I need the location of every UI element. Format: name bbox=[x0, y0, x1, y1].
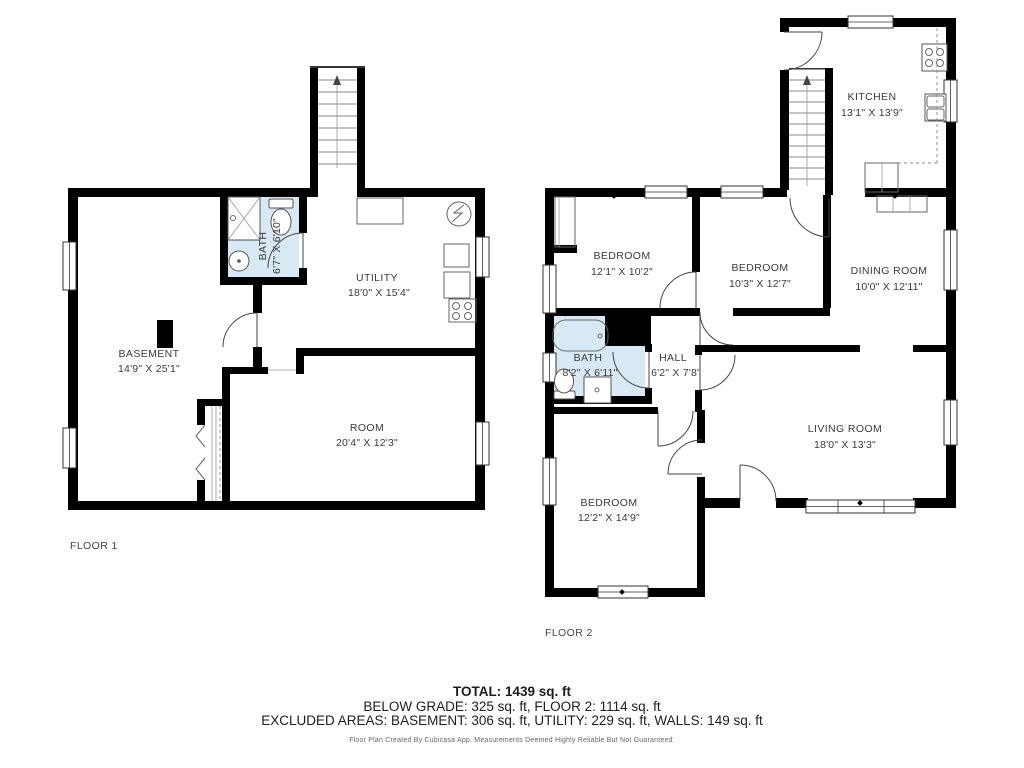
wall bbox=[545, 308, 660, 316]
stove-icon bbox=[922, 44, 947, 71]
electrical-panel-icon bbox=[447, 202, 471, 226]
appliance-box bbox=[444, 244, 469, 267]
room-label-room: ROOM bbox=[350, 422, 384, 434]
room-label-living: LIVING ROOM bbox=[808, 423, 882, 435]
sink-icon bbox=[229, 251, 249, 271]
wall bbox=[645, 344, 652, 352]
room-label-dining: DINING ROOM bbox=[851, 265, 928, 277]
wall bbox=[702, 345, 860, 352]
room-dims-bath2: 8'2" X 6'11" bbox=[562, 367, 617, 379]
floor2-caption: FLOOR 2 bbox=[545, 627, 593, 639]
stair-break-mark bbox=[196, 425, 205, 447]
area-summary: TOTAL: 1439 sq. ft BELOW GRADE: 325 sq. … bbox=[0, 685, 1024, 745]
room-label-bedroom3: BEDROOM bbox=[580, 497, 637, 509]
wall bbox=[68, 501, 485, 510]
dining-cabinet bbox=[877, 196, 927, 212]
room-label-hall: HALL bbox=[659, 352, 687, 364]
room-dims-bath1: 6'7" X 6'10" bbox=[271, 218, 283, 274]
wall bbox=[733, 308, 830, 316]
room-dims-kitchen: 13'1" X 13'9" bbox=[841, 107, 903, 119]
floor1-caption: FLOOR 1 bbox=[70, 540, 118, 552]
window bbox=[543, 16, 957, 598]
wall bbox=[253, 285, 262, 313]
wall bbox=[357, 68, 365, 193]
floorplan-drawing: BASEMENT 14'9" X 25'1" UTILITY 18'0" X 1… bbox=[0, 0, 1024, 660]
wall bbox=[545, 407, 658, 414]
wall bbox=[197, 399, 205, 425]
wall bbox=[913, 345, 956, 352]
room-label-bath1: BATH bbox=[257, 232, 269, 261]
room-dims-utility: 18'0" X 15'4" bbox=[348, 287, 410, 299]
room-dims-bedroom2: 10'3" X 12'7" bbox=[729, 278, 791, 290]
room-dims-bedroom1: 12'1" X 10'2" bbox=[591, 266, 653, 278]
wall bbox=[823, 195, 831, 308]
wall bbox=[697, 410, 705, 443]
wall bbox=[253, 347, 262, 369]
excluded-areas: EXCLUDED AREAS: BASEMENT: 306 sq. ft, UT… bbox=[0, 714, 1024, 729]
utility-table bbox=[357, 198, 403, 224]
room-label-bedroom1: BEDROOM bbox=[593, 250, 650, 262]
floor1-plan: BASEMENT 14'9" X 25'1" UTILITY 18'0" X 1… bbox=[63, 66, 489, 510]
room-label-utility: UTILITY bbox=[356, 272, 398, 284]
shower-icon bbox=[584, 377, 611, 403]
kitchen-sink-icon bbox=[925, 94, 946, 121]
wall bbox=[68, 188, 318, 197]
wall bbox=[296, 348, 478, 356]
appliance-box bbox=[444, 272, 470, 298]
floor2-plan: KITCHEN 13'1" X 13'9" BEDROOM 12'1" X 10… bbox=[543, 16, 957, 598]
room-dims-dining: 10'0" X 12'11" bbox=[855, 281, 922, 293]
credit-note: Floor Plan Created By Cubicasa App. Meas… bbox=[0, 736, 1024, 745]
chimney bbox=[157, 320, 173, 348]
wall bbox=[695, 345, 702, 355]
shower-icon bbox=[228, 197, 260, 240]
wall bbox=[697, 477, 705, 595]
room-label-kitchen: KITCHEN bbox=[848, 91, 897, 103]
wall bbox=[692, 188, 700, 272]
wall bbox=[197, 480, 205, 508]
total-area: TOTAL: 1439 sq. ft bbox=[0, 685, 1024, 700]
stove-icon bbox=[449, 299, 476, 322]
room-dims-room: 20'4" X 12'3" bbox=[336, 437, 398, 449]
wall bbox=[545, 245, 577, 253]
wall-tick bbox=[611, 193, 898, 595]
wall bbox=[220, 193, 228, 285]
wall bbox=[357, 188, 485, 197]
wall bbox=[660, 308, 700, 316]
wall bbox=[776, 498, 808, 508]
room-dims-hall: 6'2" X 7'8" bbox=[651, 367, 701, 379]
room-dims-basement: 14'9" X 25'1" bbox=[118, 363, 180, 375]
closet bbox=[555, 197, 575, 247]
wall bbox=[780, 70, 789, 190]
wall bbox=[220, 277, 307, 285]
below-grade-area: BELOW GRADE: 325 sq. ft, FLOOR 2: 1114 s… bbox=[0, 700, 1024, 715]
stair-break-mark bbox=[196, 458, 205, 480]
wall bbox=[299, 268, 307, 280]
wall bbox=[299, 193, 307, 233]
staircase-up bbox=[789, 68, 825, 186]
staircase-up bbox=[318, 75, 357, 168]
floorplan-page: BASEMENT 14'9" X 25'1" UTILITY 18'0" X 1… bbox=[0, 0, 1024, 768]
room-dims-bedroom3: 12'2" X 14'9" bbox=[578, 512, 640, 524]
wall bbox=[310, 66, 365, 68]
wall bbox=[222, 367, 230, 510]
room-label-basement: BASEMENT bbox=[119, 348, 180, 360]
wall bbox=[913, 498, 956, 508]
room-label-bath2: BATH bbox=[574, 352, 603, 364]
wall bbox=[705, 498, 740, 508]
wall bbox=[825, 68, 833, 195]
room-label-bedroom2: BEDROOM bbox=[731, 262, 788, 274]
room-dims-living: 18'0" X 13'3" bbox=[814, 439, 876, 451]
wall bbox=[695, 390, 702, 412]
wall bbox=[310, 68, 318, 193]
chimney bbox=[605, 316, 651, 346]
